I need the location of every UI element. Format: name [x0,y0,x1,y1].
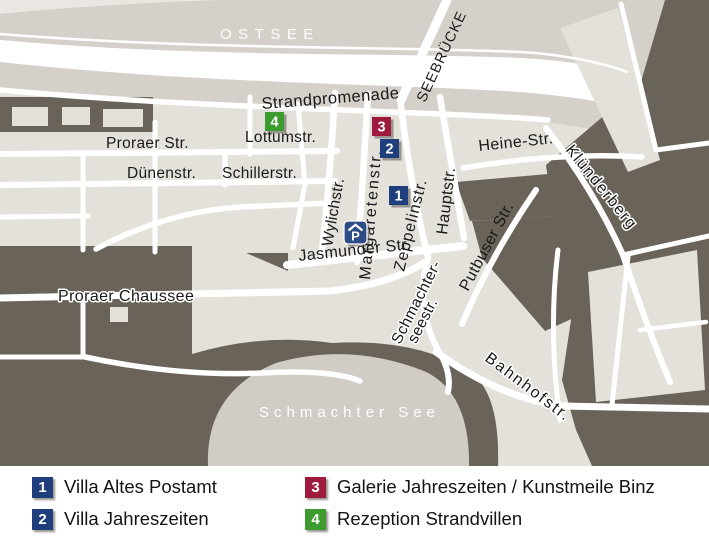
street-label-proraer-str: Proraer Str. [106,135,189,152]
marker-3-galerie-jahreszeiten: 3 [372,117,394,139]
legend-label-2: Villa Jahreszeiten [64,508,209,530]
legend-square-2: 2 [32,509,53,530]
svg-text:2: 2 [385,142,393,158]
legend-item-rezeption-strandvillen: 4 Rezeption Strandvillen [305,508,522,530]
marker-1-villa-altes-postamt: 1 [389,186,411,208]
parking-icon: P [344,221,370,247]
legend-label-1: Villa Altes Postamt [64,476,217,498]
parking-letter: P [351,229,360,244]
street-label-schillerstr: Schillerstr. [222,165,297,182]
sea-label: OSTSEE [220,26,320,43]
legend-label-4: Rezeption Strandvillen [337,508,522,530]
marker-4-rezeption-strandvillen: 4 [265,112,287,134]
legend-item-villa-altes-postamt: 1 Villa Altes Postamt [32,476,217,498]
lake-label: Schmachter See [259,404,440,421]
street-label-proraer-chaussee: Proraer Chaussee [58,288,194,305]
binz-town-map: OSTSEE Schmachter See SEEBRÜCKE Strandpr… [0,0,709,551]
legend-square-3: 3 [305,477,326,498]
street-label-duenenstr: Dünenstr. [127,165,196,182]
svg-text:3: 3 [377,120,385,136]
marker-2-villa-jahreszeiten: 2 [380,139,402,161]
svg-text:4: 4 [270,115,278,131]
legend-label-3: Galerie Jahreszeiten / Kunstmeile Binz [337,476,655,498]
legend-square-4: 4 [305,509,326,530]
legend-item-villa-jahreszeiten: 2 Villa Jahreszeiten [32,508,209,530]
legend-item-galerie-jahreszeiten: 3 Galerie Jahreszeiten / Kunstmeile Binz [305,476,655,498]
legend-square-1: 1 [32,477,53,498]
map-canvas: OSTSEE Schmachter See SEEBRÜCKE Strandpr… [0,0,709,466]
svg-text:1: 1 [394,189,402,205]
